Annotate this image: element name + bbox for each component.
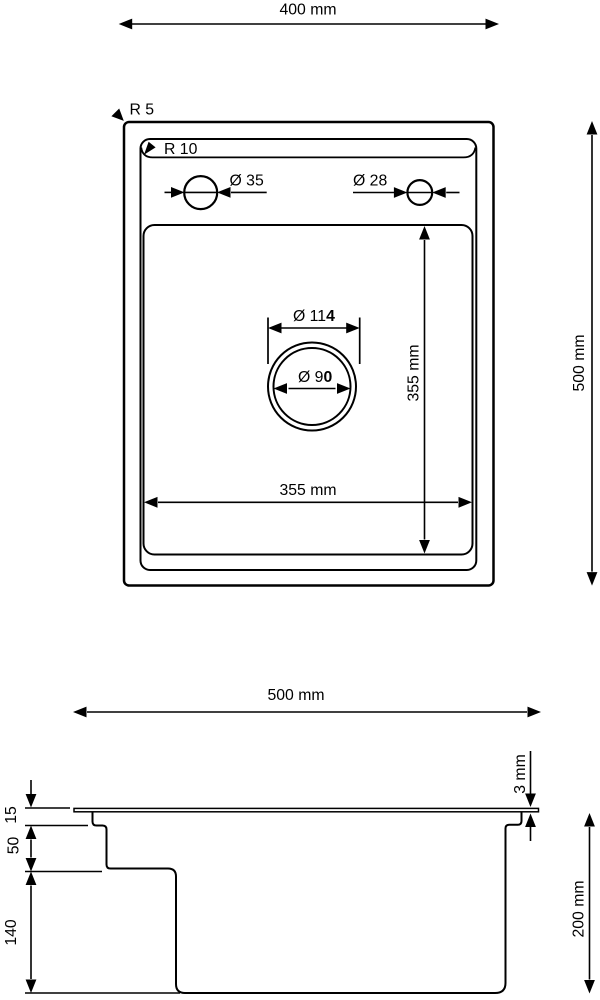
svg-text:15: 15 [3, 806, 20, 824]
svg-text:355 mm: 355 mm [406, 344, 423, 401]
svg-text:500 mm: 500 mm [571, 334, 588, 391]
svg-text:50: 50 [6, 837, 23, 855]
svg-text:R 10: R 10 [164, 141, 198, 158]
svg-text:500 mm: 500 mm [267, 687, 324, 704]
svg-text:Ø 28: Ø 28 [353, 173, 387, 190]
svg-text:3 mm: 3 mm [512, 754, 529, 794]
svg-text:140: 140 [3, 919, 20, 946]
svg-text:Ø 35: Ø 35 [230, 173, 264, 190]
svg-text:Ø 90: Ø 90 [298, 369, 332, 386]
svg-text:R 5: R 5 [130, 102, 155, 119]
svg-text:400 mm: 400 mm [279, 2, 336, 19]
svg-text:355 mm: 355 mm [279, 482, 336, 499]
svg-text:Ø 114: Ø 114 [293, 308, 335, 325]
svg-text:200 mm: 200 mm [571, 880, 588, 937]
